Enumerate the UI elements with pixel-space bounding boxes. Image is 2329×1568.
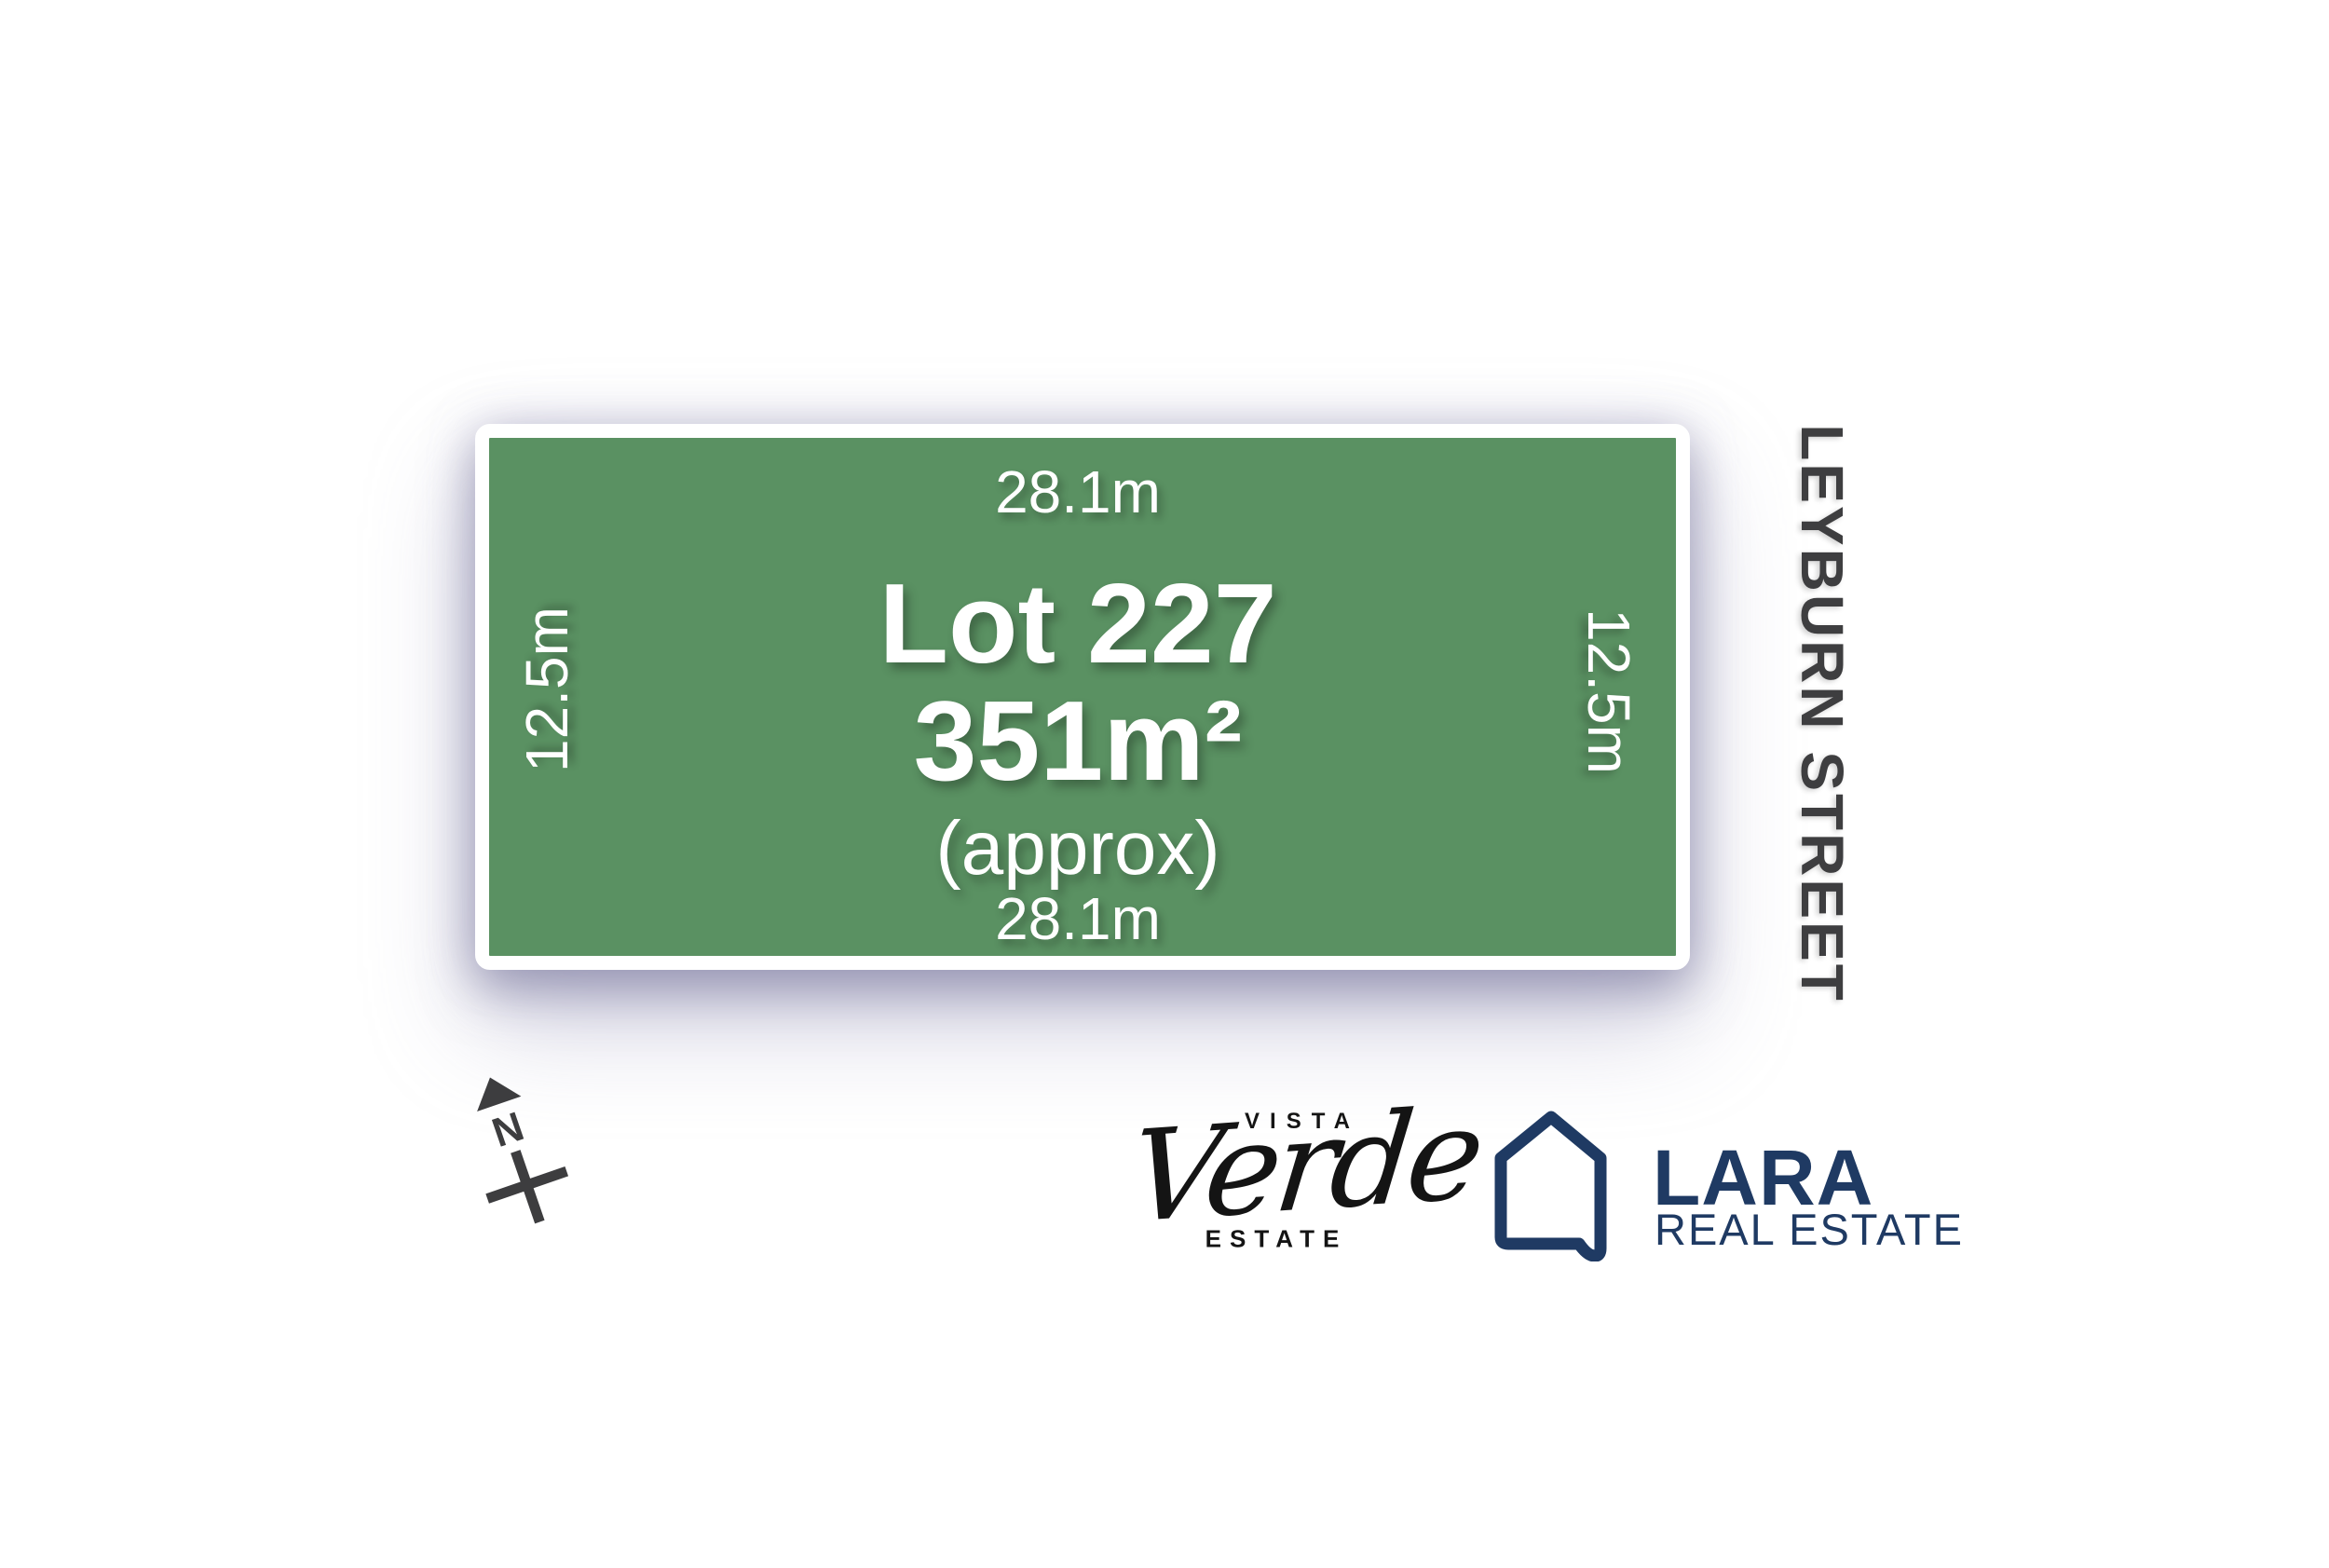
street-name-label: LEYBURN STREET [1788,424,1857,1003]
dimension-top: 28.1m [995,457,1161,526]
estate-text: ESTATE [1205,1225,1348,1254]
dimension-right: 12.5m [1574,608,1643,774]
lot-number: Lot 227 [878,566,1276,680]
dimension-bottom: 28.1m [995,884,1161,953]
lara-subtitle: REAL ESTATE [1655,1207,1964,1251]
dimension-left: 12.5m [512,607,581,772]
vista-verde-estate-logo: Verde VISTA ESTATE [1164,1081,1444,1267]
house-pin-icon [1489,1111,1614,1261]
north-arrow-icon: N [441,1059,589,1243]
lot-area-note: (approx) [878,811,1276,887]
lot-title-block: Lot 227 351m² (approx) [878,566,1276,887]
vista-text: VISTA [1245,1109,1360,1135]
compass-n-label: N [486,1103,529,1156]
land-lot-flyer: 28.1m 28.1m 12.5m 12.5m Lot 227 351m² (a… [0,0,2329,1568]
lot-area: 351m² [878,684,1276,798]
lara-real-estate-logo: LARA REAL ESTATE [1489,1111,1954,1269]
